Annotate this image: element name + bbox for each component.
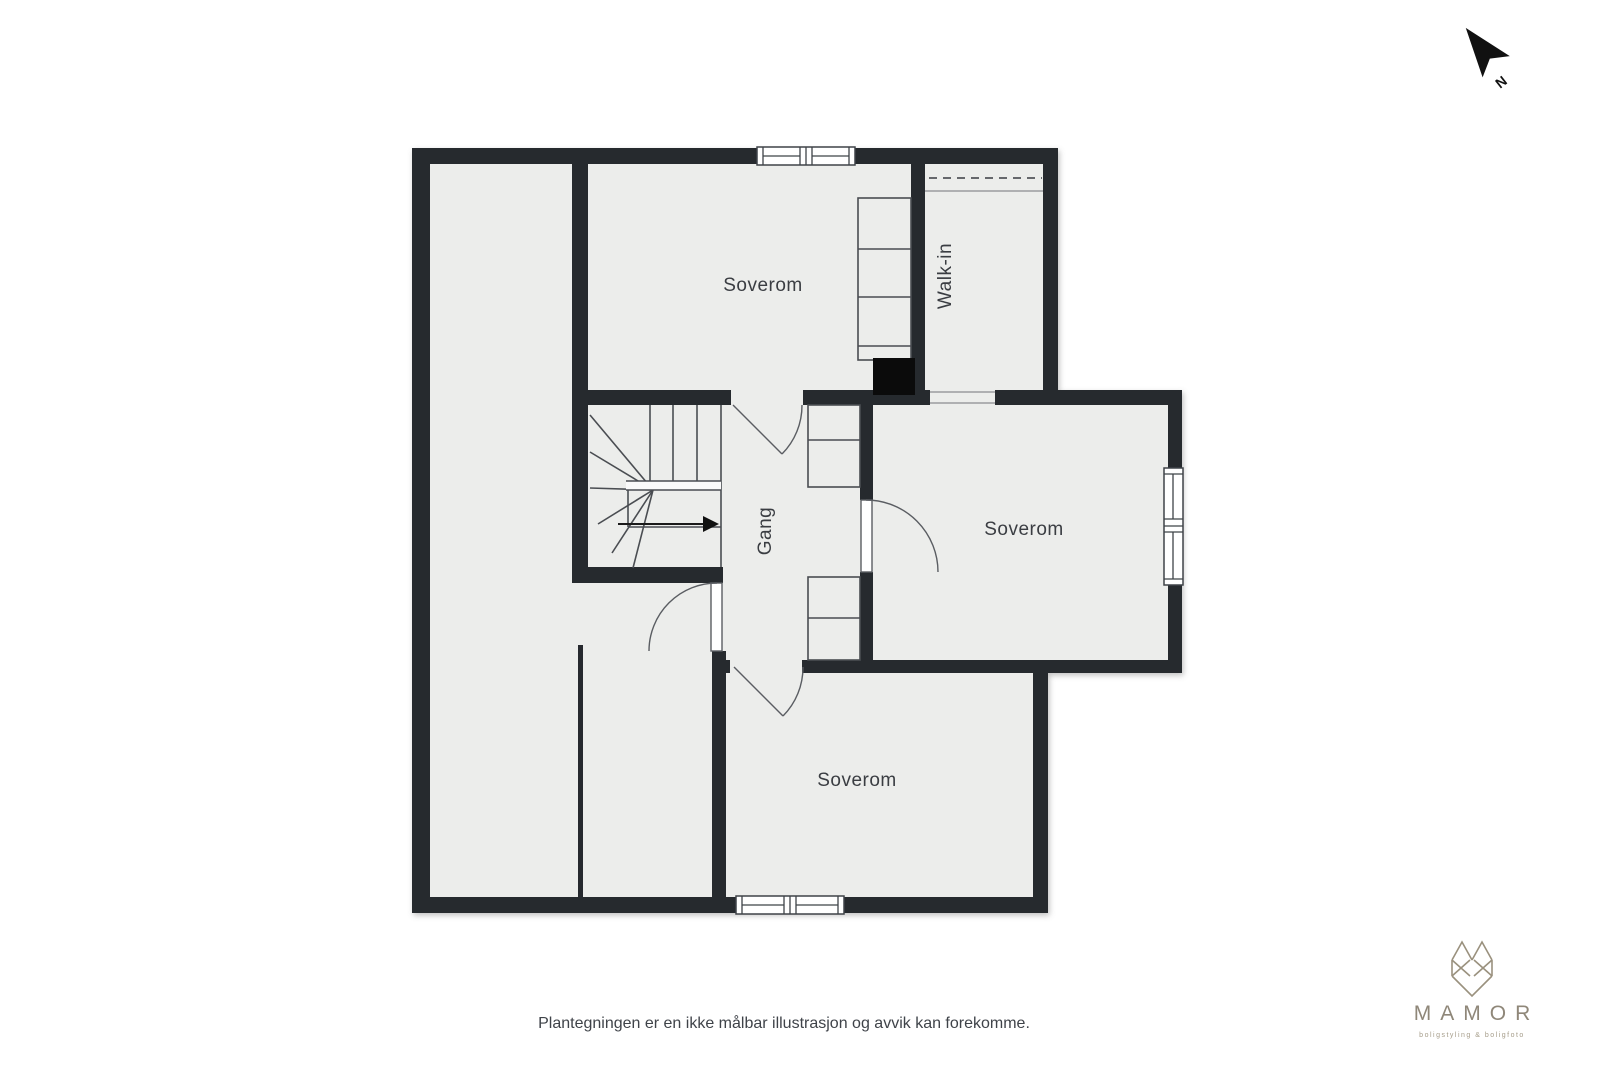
logo-name: MAMOR — [1405, 1002, 1540, 1026]
partial-wall-divider — [578, 645, 583, 897]
floor-plan-drawing — [0, 0, 1600, 1067]
disclaimer-text: Plantegningen er en ikke målbar illustra… — [538, 1015, 1030, 1033]
window-top — [757, 147, 855, 165]
north-arrow-icon — [1452, 17, 1510, 77]
room-label-gang: Gang — [755, 507, 777, 555]
room-label-walk-in: Walk-in — [935, 243, 957, 309]
window-right — [1164, 468, 1183, 585]
room-label-soverom-right: Soverom — [984, 519, 1064, 541]
building-outline — [412, 148, 1182, 913]
window-bottom — [736, 896, 844, 914]
mamor-logo-icon — [1452, 942, 1492, 996]
room-label-soverom-bottom: Soverom — [817, 770, 897, 792]
chimney-shaft — [873, 358, 915, 395]
floor-plan-page: Soverom Walk-in Gang Soverom Soverom N P… — [0, 0, 1600, 1067]
logo-tagline: boligstyling & boligfoto — [1419, 1032, 1525, 1039]
floor-area — [412, 148, 1182, 913]
room-label-soverom-top: Soverom — [723, 275, 803, 297]
